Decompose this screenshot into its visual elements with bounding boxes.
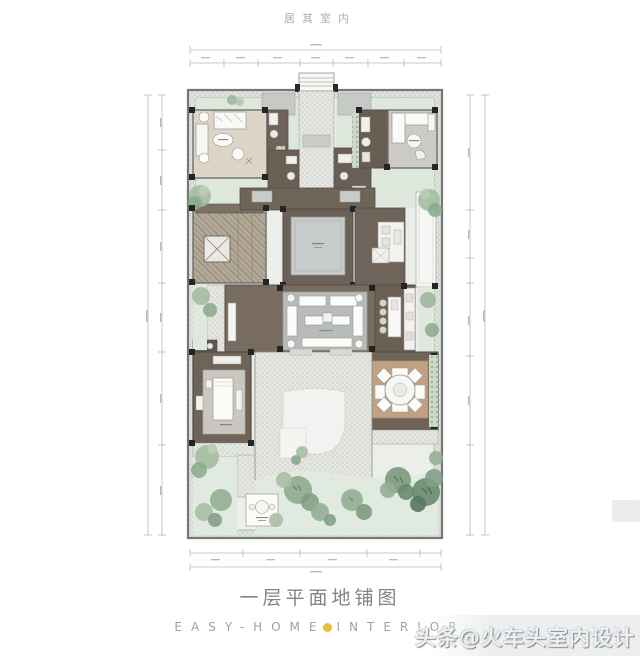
chair (269, 504, 275, 510)
page: 居其室内 (0, 0, 640, 656)
sofa (302, 338, 352, 347)
overlay-artifact (612, 500, 640, 522)
floor-plan (0, 0, 640, 656)
stool (380, 327, 387, 334)
sofa (196, 124, 208, 156)
coffee-table (332, 316, 350, 325)
sofa (299, 296, 326, 306)
stair-hall (193, 204, 266, 283)
hedge (429, 355, 438, 427)
bed (214, 112, 246, 129)
stool (380, 300, 387, 307)
sofa (330, 296, 357, 306)
living-room (207, 285, 375, 352)
wardrobe (213, 356, 241, 364)
dining-pavilion (362, 352, 438, 444)
brand-dot-icon (323, 623, 332, 632)
patio (255, 349, 372, 480)
stool (380, 318, 387, 325)
tree (269, 513, 283, 527)
watermark: 头条@火车头室内设计 (415, 622, 635, 652)
stool (380, 309, 387, 316)
tree (429, 451, 443, 465)
sofa (287, 306, 297, 336)
dining-table (375, 368, 425, 413)
plan-caption: 一层平面地铺图 (0, 583, 640, 610)
coffee-table (305, 316, 323, 325)
console (228, 303, 236, 341)
sofa (353, 306, 363, 336)
suite-top-right (352, 110, 437, 168)
bed (213, 378, 233, 420)
foyer-mat (303, 135, 330, 147)
chair (249, 504, 255, 510)
walkway (237, 455, 257, 497)
brand-left: EASY-HOME (174, 620, 325, 634)
round-table (256, 501, 269, 514)
hedge (352, 112, 359, 168)
